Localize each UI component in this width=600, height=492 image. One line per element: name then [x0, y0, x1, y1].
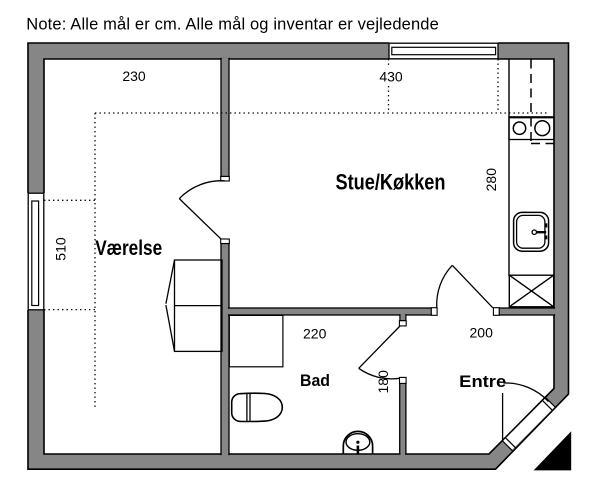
svg-text:510: 510	[52, 237, 68, 261]
svg-text:200: 200	[470, 325, 494, 341]
svg-text:280: 280	[483, 168, 499, 192]
svg-text:430: 430	[379, 69, 403, 85]
svg-text:Entre: Entre	[459, 373, 506, 391]
svg-text:180: 180	[375, 370, 391, 394]
svg-text:230: 230	[122, 68, 146, 84]
svg-text:Værelse: Værelse	[95, 237, 162, 260]
svg-text:Stue/Køkken: Stue/Køkken	[336, 170, 446, 195]
svg-text:Note: Alle mål er cm. Alle mål: Note: Alle mål er cm. Alle mål og invent…	[26, 15, 439, 33]
svg-text:220: 220	[303, 326, 327, 342]
svg-text:Bad: Bad	[300, 371, 330, 390]
